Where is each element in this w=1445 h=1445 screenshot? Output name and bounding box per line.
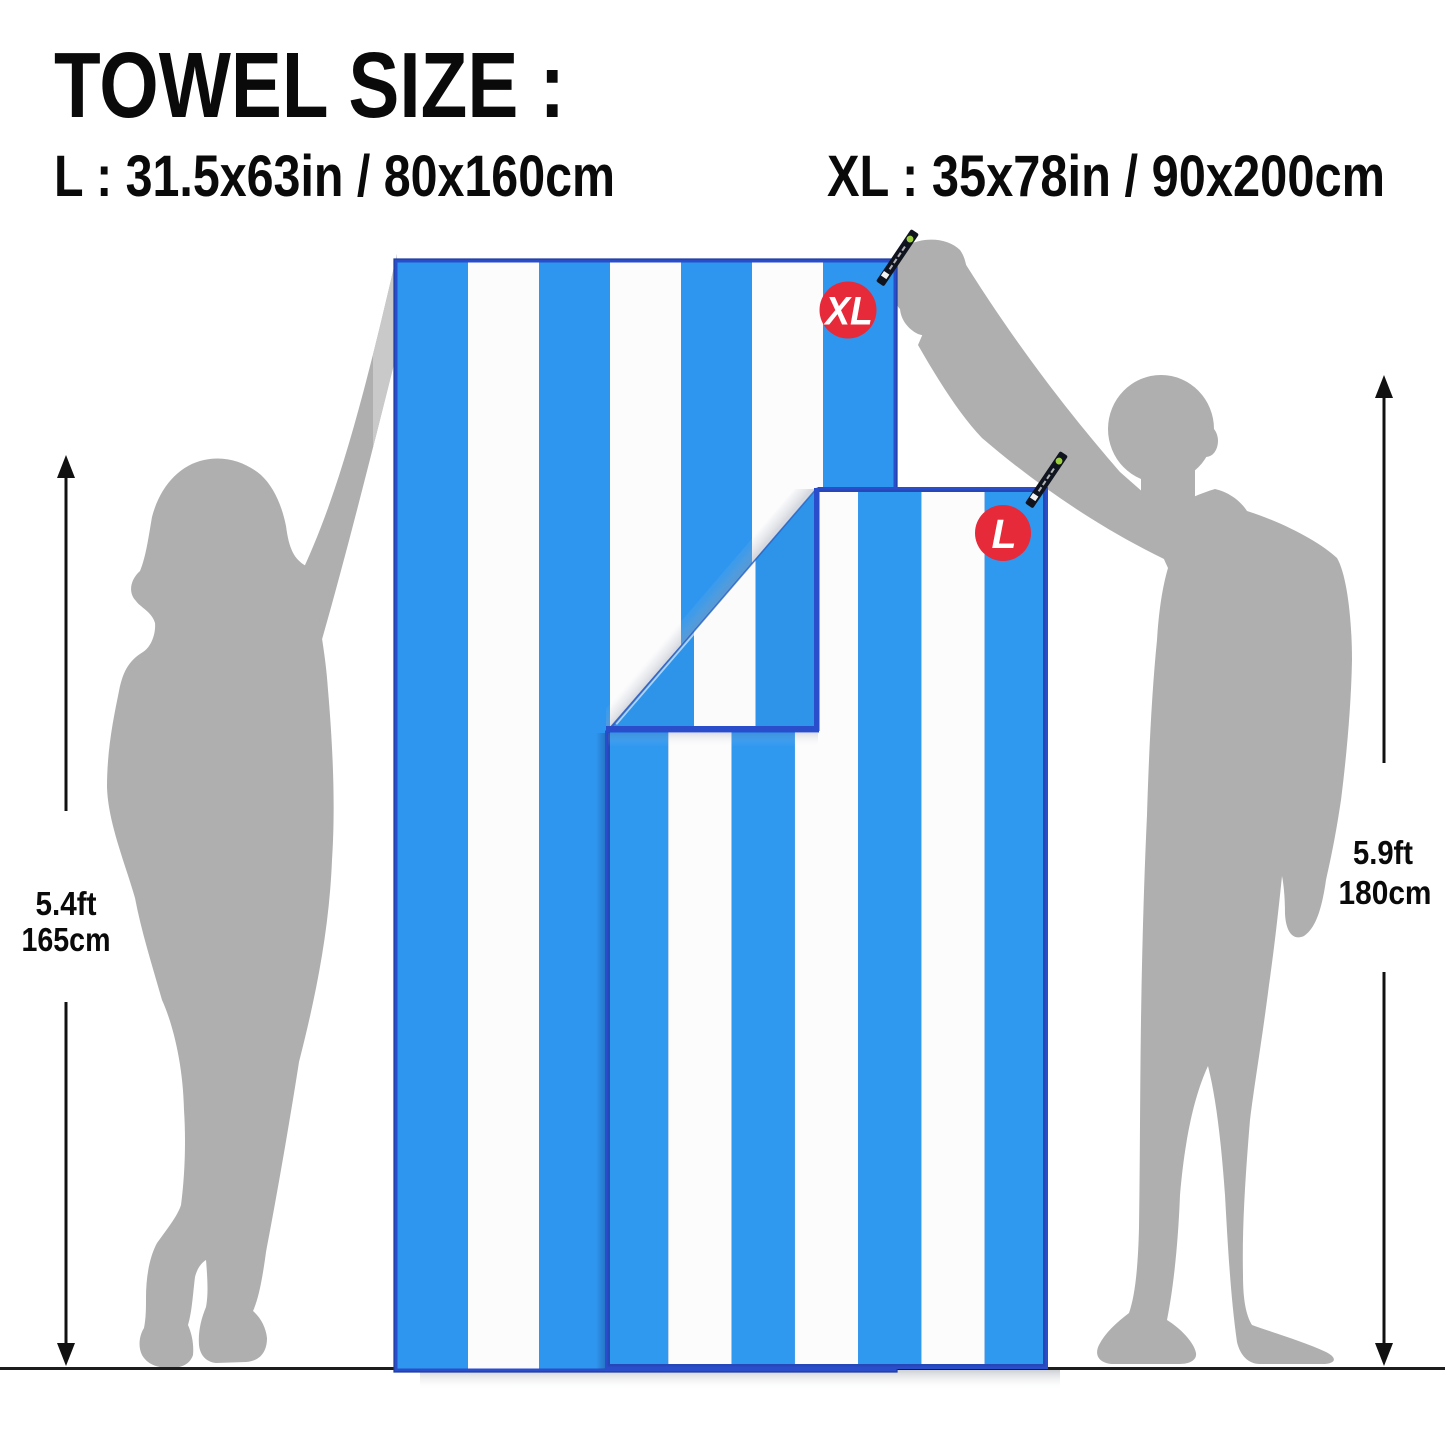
svg-text:TOWEL SIZE :: TOWEL SIZE : xyxy=(54,33,565,137)
svg-text:5.9ft: 5.9ft xyxy=(1353,834,1413,871)
svg-text:L : 31.5x63in / 80x160cm: L : 31.5x63in / 80x160cm xyxy=(54,144,615,209)
svg-text:L: L xyxy=(991,511,1016,557)
svg-text:5.4ft: 5.4ft xyxy=(36,885,97,922)
svg-text:XL : 35x78in / 90x200cm: XL : 35x78in / 90x200cm xyxy=(827,144,1385,209)
svg-text:165cm: 165cm xyxy=(22,921,111,958)
svg-text:XL: XL xyxy=(823,290,872,334)
svg-text:180cm: 180cm xyxy=(1339,874,1432,911)
